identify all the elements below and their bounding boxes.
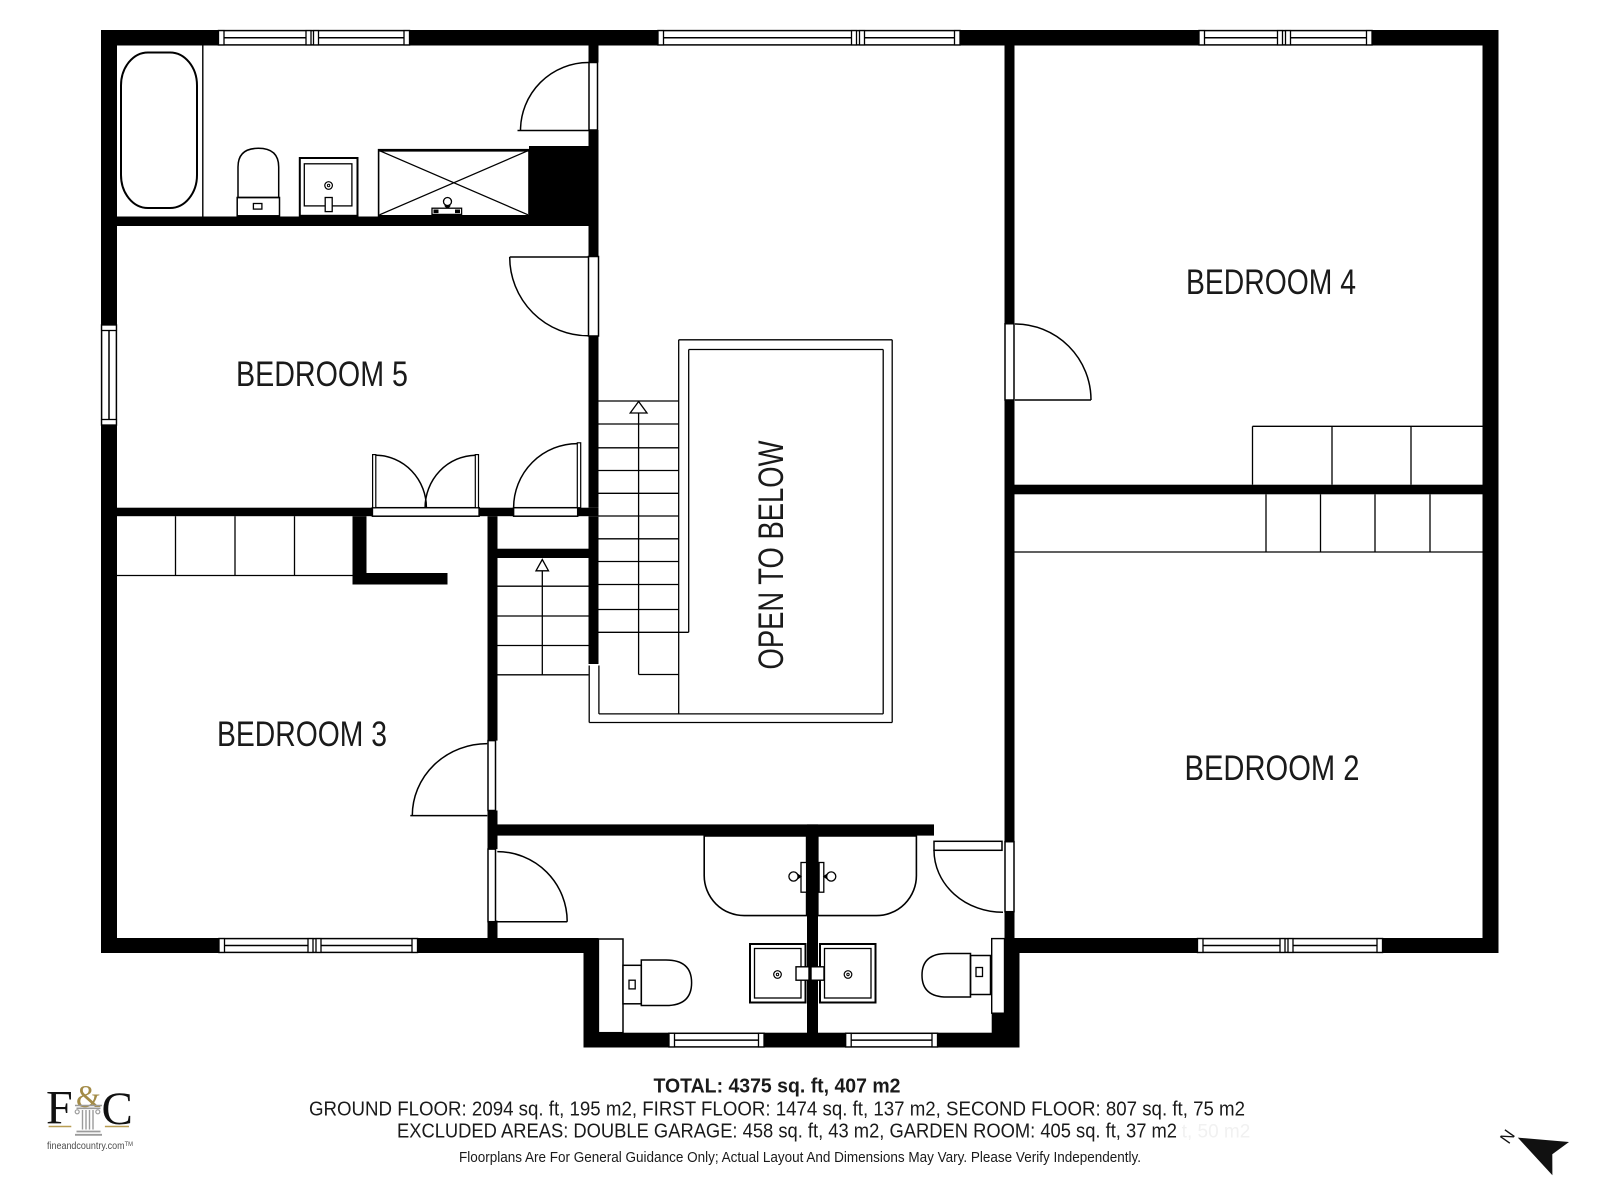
svg-text:Floorplans Are For General Gui: Floorplans Are For General Guidance Only… [459,1149,1141,1166]
svg-text:EXCLUDED AREAS: DOUBLE GARAGE:: EXCLUDED AREAS: DOUBLE GARAGE: 458 sq. f… [397,1121,1177,1143]
svg-text:fineandcountry.comTM: fineandcountry.comTM [47,1141,133,1152]
svg-text:BEDROOM 4: BEDROOM 4 [1186,263,1356,302]
svg-text:BEDROOM 3: BEDROOM 3 [217,715,387,754]
svg-text:BEDROOM 5: BEDROOM 5 [236,355,408,394]
svg-text:TOTAL: 4375 sq. ft, 407 m2: TOTAL: 4375 sq. ft, 407 m2 [654,1076,901,1098]
svg-text:GROUND FLOOR: 2094 sq. ft, 195: GROUND FLOOR: 2094 sq. ft, 195 m2, FIRST… [309,1099,1245,1121]
svg-text:BEDROOM 2: BEDROOM 2 [1185,749,1360,788]
svg-text:t, 50 m2: t, 50 m2 [1182,1122,1251,1143]
svg-text:OPEN TO BELOW: OPEN TO BELOW [752,441,791,670]
